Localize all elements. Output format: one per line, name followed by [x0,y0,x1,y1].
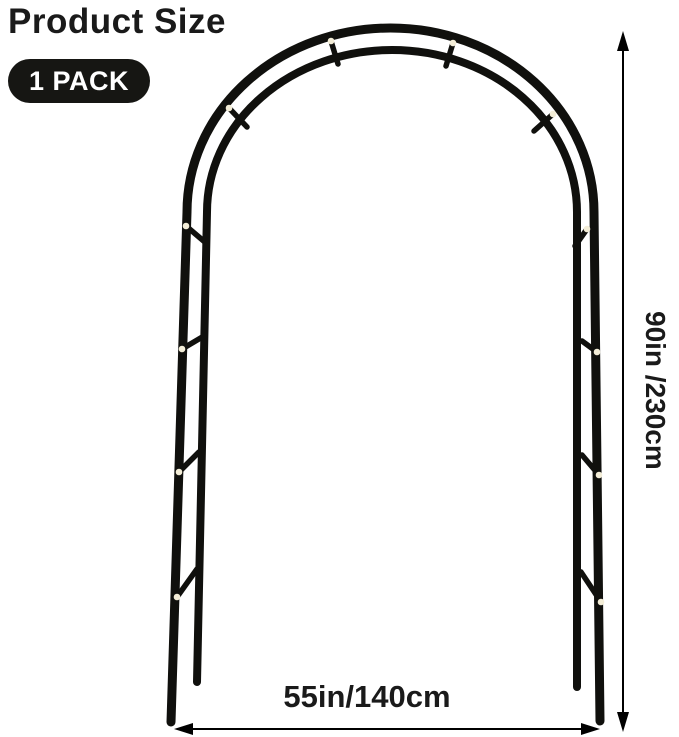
arch-inner-tube [197,50,577,687]
horizontal-dimension-arrow [174,723,600,735]
width-dimension-label: 55in/140cm [237,679,497,715]
down-arrowhead-icon [617,712,629,732]
garden-arch-diagram [0,0,679,737]
left-arrowhead-icon [174,723,193,735]
right-arrowhead-icon [581,723,600,735]
product-size-infographic: Product Size 1 PACK [0,0,679,737]
up-arrowhead-icon [617,31,629,51]
vertical-dimension-arrow [617,31,629,732]
height-dimension-label: 90in /230cm [639,311,670,470]
garden-arch-illustration [171,28,604,722]
